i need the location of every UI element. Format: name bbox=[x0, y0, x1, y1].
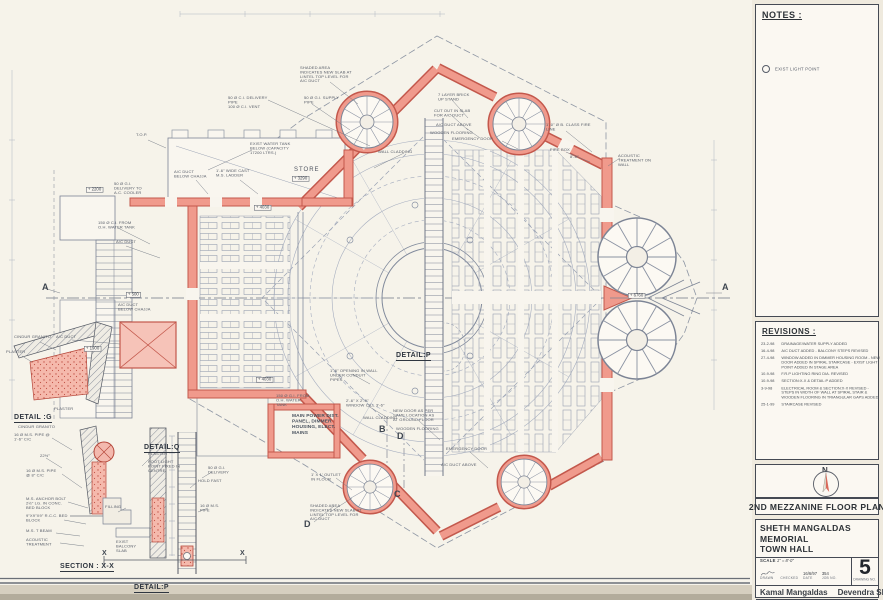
revision-text: A/C DUCT ADDED - BALCONY STEPS REVISED bbox=[781, 349, 881, 354]
grid-marker-d1: D bbox=[397, 431, 404, 441]
heading-detail-g: DETAIL :G bbox=[14, 414, 52, 423]
note-label: EXIST LIGHT POINT bbox=[775, 67, 820, 71]
level-4030a: + 4030 bbox=[254, 205, 271, 211]
grid-marker-x-left: X bbox=[102, 550, 107, 557]
revision-row: 23-2-98DRAINAGE/WATER SUPPLY ADDED bbox=[761, 342, 881, 347]
annotation-dim-8ft: 8'-0" bbox=[570, 155, 592, 160]
annotation-duct-chajja-2: A/C DUCT BELOW CHAJJA bbox=[118, 303, 152, 312]
scale-value: 1" = 8'-0" bbox=[777, 559, 794, 563]
annotation-shaded-bottom: SHADED AREA INDICATES NEW SLAB AT LINTEL… bbox=[310, 504, 362, 522]
drawing-sheet: SHADED AREA INDICATES NEW SLAB AT LINTEL… bbox=[0, 0, 883, 600]
revision-row: 10-9-98F.R.P LIGHTING RING DIA. REVISED bbox=[761, 372, 881, 377]
annotation-cindur-1: CINDUR GRANITO bbox=[14, 335, 54, 340]
revision-row: 25-1-99STAIRCASE REVISED bbox=[761, 402, 881, 407]
annotation-main-power: MAIN POWER DIST. PANEL, DIMMER HOUSING, … bbox=[292, 413, 350, 435]
notes-box: NOTES : EXIST LIGHT POINT bbox=[755, 4, 879, 317]
annotation-duct-chajja-1: A/C DUCT BELOW CHAJJA bbox=[174, 170, 208, 179]
checked-cell: CHECKED bbox=[780, 572, 798, 580]
grid-marker-b: B bbox=[379, 424, 386, 434]
annotation-acoustic-2: ACOUSTIC TREATMENT bbox=[26, 538, 62, 547]
revision-row: 10-9-98SECTION:X-X & DETAIL:P ADDED bbox=[761, 379, 881, 384]
project-line2: TOWN HALL bbox=[760, 544, 874, 555]
annotation-plaster-1: PLASTER bbox=[6, 350, 32, 355]
notes-title: NOTES : bbox=[756, 5, 878, 20]
annotation-ms-pipe-8: 16 Ø M.S. PIPE @ 8" C/C bbox=[26, 469, 60, 478]
scale-row: SCALE 1" = 8'-0" bbox=[760, 559, 851, 563]
level-1900: + 1900 bbox=[84, 346, 101, 352]
heading-section-xx: SECTION : X-X bbox=[60, 563, 114, 572]
heading-detail-p-plan: DETAIL:P bbox=[396, 352, 431, 361]
annotation-ms-pipe-r: 16 Ø M.S. PIPE bbox=[200, 504, 228, 513]
annotation-vent-pipe: 100 Ø C.I. VENT bbox=[228, 105, 274, 110]
annotation-supply-pipe: 50 Ø G.I. SUPPLY PIPE bbox=[304, 96, 340, 105]
scale-label: SCALE bbox=[760, 559, 776, 563]
revision-date: 27-4-98 bbox=[761, 356, 781, 370]
level-2200: + 2200 bbox=[86, 187, 103, 193]
architect-2: Devendra Shah bbox=[838, 588, 883, 597]
annotation-plaster-2: PLASTER bbox=[54, 407, 80, 412]
job-label: JOB NO. bbox=[822, 576, 837, 580]
drawing-number-label: DRAWING NO. bbox=[854, 579, 877, 582]
grid-marker-d2: D bbox=[304, 519, 311, 529]
annotation-cindur-2: CINDUR GRANITO bbox=[18, 425, 58, 430]
title-panel: NOTES : EXIST LIGHT POINT REVISIONS : 23… bbox=[752, 0, 883, 600]
grid-marker-a-left: A bbox=[42, 282, 49, 292]
annotation-balcony-slab: EXIST BALCONY SLAB bbox=[116, 540, 146, 554]
drawn-label: DRAWN bbox=[760, 576, 774, 580]
annotation-from-oh-tank: 150 Ø G.I. FROM O.H. WATER TANK bbox=[276, 394, 310, 408]
compass-box: N bbox=[755, 464, 879, 498]
annotation-wood-floor-1: WOODEN FLOORING bbox=[430, 131, 476, 136]
compass-icon bbox=[809, 468, 843, 498]
architects-row: Kamal Mangaldas Devendra Shah bbox=[756, 585, 878, 599]
revision-date: 3-9-98 bbox=[761, 386, 781, 400]
annotation-duct-above-1: A/C DUCT ABOVE bbox=[436, 123, 482, 128]
annotation-ac-duct-2: A/C DUCT bbox=[56, 335, 84, 340]
floor-plan-graphic bbox=[0, 0, 755, 600]
sign-row: DRAWN CHECKED 16/6/97 DATE 354 JOB NO. bbox=[760, 571, 851, 580]
grid-marker-c: C bbox=[394, 489, 401, 499]
annotation-fire-box: FIRE BOX bbox=[550, 148, 580, 153]
revision-row: 27-4-98WINDOW ADDED IN DIMMER HOUSING RO… bbox=[761, 356, 881, 370]
revision-date: 16-4-98 bbox=[761, 349, 781, 354]
annotation-fire-line: 1'-0" Ø B. CLASS FIRE LINE bbox=[546, 123, 592, 132]
level-3290: + 3290 bbox=[292, 176, 309, 182]
architect-1: Kamal Mangaldas bbox=[760, 588, 828, 597]
grid-marker-a-right: A bbox=[722, 282, 729, 292]
annotation-ac-duct-1: A/C DUCT bbox=[116, 240, 146, 245]
revision-text: SECTION:X-X & DETAIL:P ADDED bbox=[781, 379, 881, 384]
annotation-store: STORE bbox=[294, 167, 320, 173]
project-box: SHETH MANGALDAS MEMORIAL TOWN HALL SCALE… bbox=[755, 519, 879, 598]
project-name: SHETH MANGALDAS MEMORIAL TOWN HALL bbox=[756, 520, 878, 557]
project-line1: SHETH MANGALDAS MEMORIAL bbox=[760, 523, 874, 544]
light-point-icon bbox=[762, 65, 770, 73]
annotation-outlet-floor: 1' X 1' OUTLET IN FLOOR bbox=[311, 473, 345, 482]
annotation-delivery-pipe: 50 Ø C.I. DELIVERY PIPE bbox=[228, 96, 276, 105]
annotation-emergency-1: EMERGENCY DOOR bbox=[452, 137, 512, 142]
revision-row: 16-4-98A/C DUCT ADDED - BALCONY STEPS RE… bbox=[761, 349, 881, 354]
level-500: + 500 bbox=[126, 292, 141, 298]
annotation-delivery-right: 50 Ø G.I. DELIVERY bbox=[208, 466, 246, 475]
drawing-number-cell: 5 DRAWING NO. bbox=[851, 558, 878, 585]
heading-detail-p: DETAIL:P bbox=[134, 584, 169, 593]
job-cell: 354 JOB NO. bbox=[822, 572, 837, 580]
annotation-delivery-cooler: 50 Ø G.I. DELIVERY TO A.C. COOLER bbox=[114, 182, 150, 196]
auditorium-seating-right bbox=[452, 150, 601, 452]
level-4030b: + 4030 bbox=[256, 377, 273, 383]
drawing-title-strip: 2ND MEZZANINE FLOOR PLAN bbox=[755, 498, 879, 515]
drawn-cell: DRAWN bbox=[760, 571, 776, 580]
annotation-wall-clad-1: WALL CLADDING bbox=[378, 150, 434, 155]
revisions-title: REVISIONS : bbox=[756, 322, 878, 336]
revision-date: 10-9-98 bbox=[761, 379, 781, 384]
annotation-t-beam: M.S. T BEAM bbox=[26, 529, 58, 534]
date-cell: 16/6/97 DATE bbox=[803, 572, 817, 580]
drawing-title: 2ND MEZZANINE FLOOR PLAN bbox=[749, 502, 883, 512]
annotation-brick-upstand: 7 LAYER BRICK UP STAND bbox=[438, 93, 472, 102]
annotation-foot-light: FOOT LIGHT POINT FIXED IN CENTRE bbox=[148, 460, 182, 474]
annotation-duct-above-2: A/C DUCT ABOVE bbox=[441, 463, 485, 468]
annotation-cutout-slab: CUT OUT IN SLAB FOR A/C DUCT bbox=[434, 109, 474, 118]
annotation-anchor-bolt: M.S. ANCHOR BOLT 2½" LG. IN CONC. BED BL… bbox=[26, 497, 72, 511]
annotation-new-door: NEW DOOR AS PER SAME LOCATION AS AT GROU… bbox=[393, 409, 439, 423]
date-label: DATE bbox=[803, 576, 813, 580]
heading-detail-q: DETAIL:Q bbox=[144, 444, 180, 453]
revision-text: DRAINAGE/WATER SUPPLY ADDED bbox=[781, 342, 881, 347]
level-6760: + 6760 bbox=[628, 293, 645, 299]
annotation-shaded-top: SHADED AREA INDICATES NEW SLAB AT LINTEL… bbox=[300, 66, 352, 84]
grid-marker-x-right: X bbox=[240, 550, 245, 557]
revision-text: ELECTRICAL ROOM & SECTION:X-X REVISED - … bbox=[781, 386, 881, 400]
revision-date: 10-9-98 bbox=[761, 372, 781, 377]
drawing-number: 5 bbox=[859, 559, 871, 577]
revision-text: F.R.P LIGHTING RING DIA. REVISED bbox=[781, 372, 881, 377]
revision-row: 3-9-98ELECTRICAL ROOM & SECTION:X-X REVI… bbox=[761, 386, 881, 400]
annotation-water-tank: EXIST WATER TANK BELOW (CAPACITY 17200 L… bbox=[250, 142, 298, 156]
revisions-box: REVISIONS : 23-2-98DRAINAGE/WATER SUPPLY… bbox=[755, 321, 879, 460]
annotation-opening-conduit: 1'-6" OPENING IN WALL UNDER CONDUIT PIPE… bbox=[330, 369, 378, 383]
annotation-bed-block: 9"X9"X9" R.C.C. BED BLOCK bbox=[26, 514, 68, 523]
note-exist-light-point: EXIST LIGHT POINT bbox=[762, 65, 849, 73]
revision-text: WINDOW ADDED IN DIMMER HOUSING ROOM - NE… bbox=[781, 356, 881, 370]
revision-text: STAIRCASE REVISED bbox=[781, 402, 881, 407]
balcony-seating-left bbox=[200, 212, 303, 392]
title-block-mid: SCALE 1" = 8'-0" DRAWN CHECKED 16/6/97 D… bbox=[756, 557, 878, 585]
annotation-angle: 22½° bbox=[40, 454, 60, 459]
revisions-list: 23-2-98DRAINAGE/WATER SUPPLY ADDED 16-4-… bbox=[761, 342, 881, 409]
annotation-hold-fast: HOLD FAST bbox=[198, 479, 222, 484]
annotation-ms-pipe-16: 16 Ø M.S. PIPE @ 1'-6" C/C bbox=[14, 433, 50, 442]
annotation-top: T.O.P. bbox=[136, 133, 162, 138]
annotation-window-cill: 2'-6" X 2'-6" WINDOW CILL 3'-6" bbox=[346, 399, 386, 408]
checked-label: CHECKED bbox=[780, 576, 798, 580]
annotation-ms-ladder: 1'-6" WIDE CAST M.S. LADDER bbox=[216, 169, 256, 178]
annotation-acoustic-wall: ACOUSTIC TREATMENT ON WALL bbox=[618, 154, 660, 168]
revision-date: 23-2-98 bbox=[761, 342, 781, 347]
annotation-oh-tank: 150 Ø C.I. FROM O.H. WATER TANK bbox=[98, 221, 138, 230]
revision-date: 25-1-99 bbox=[761, 402, 781, 407]
annotation-filling: FILLING bbox=[105, 505, 131, 510]
annotation-emergency-2: EMERGENCY DOOR bbox=[446, 447, 506, 452]
